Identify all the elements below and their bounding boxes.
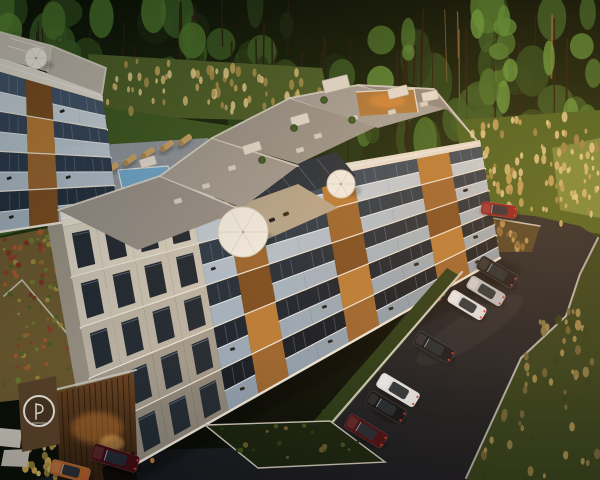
architectural-render-image: [0, 0, 600, 480]
scene-svg: [0, 0, 600, 480]
bottom-vignette-overlay: [0, 0, 600, 480]
